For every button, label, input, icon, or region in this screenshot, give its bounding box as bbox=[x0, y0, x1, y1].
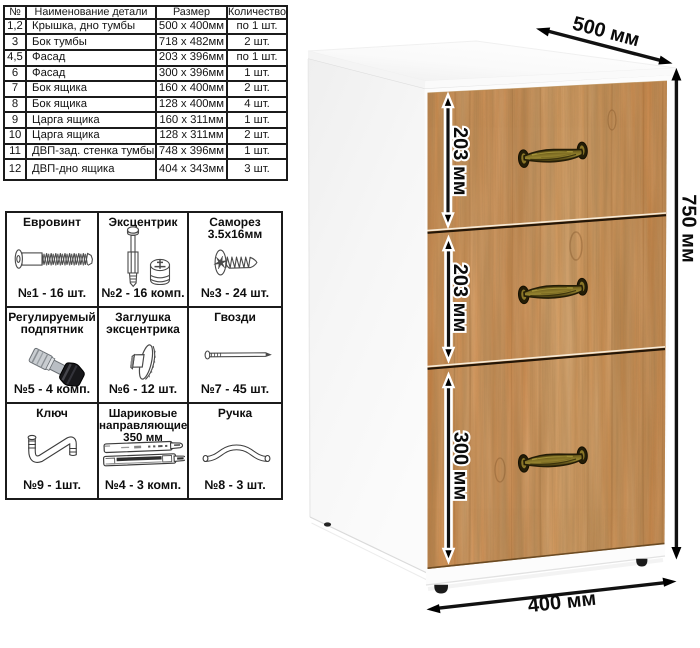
svg-text:203 мм: 203 мм bbox=[449, 127, 471, 196]
svg-text:203 мм: 203 мм bbox=[449, 264, 471, 333]
svg-text:300 мм: 300 мм bbox=[450, 432, 472, 501]
svg-text:750 мм: 750 мм bbox=[678, 194, 700, 263]
svg-text:400 мм: 400 мм bbox=[527, 588, 598, 618]
